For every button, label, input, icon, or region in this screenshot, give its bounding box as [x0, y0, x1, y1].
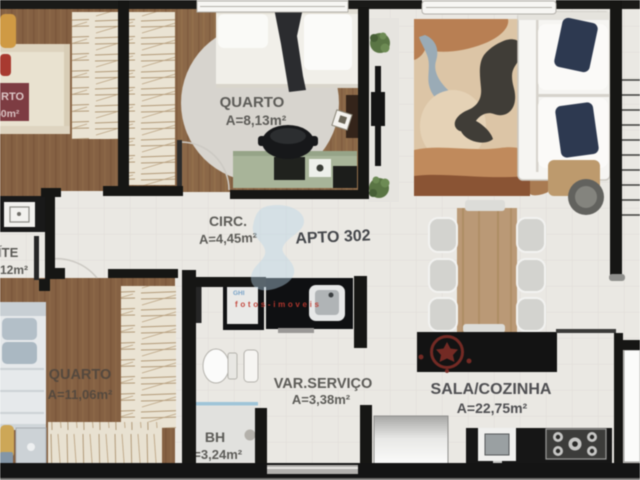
svg-text:SUÍTE: SUÍTE	[0, 245, 19, 260]
svg-text:A=4,45m²: A=4,45m²	[199, 230, 258, 247]
svg-text:CIRC.: CIRC.	[209, 213, 247, 229]
svg-text:,50m²: ,50m²	[0, 108, 20, 120]
svg-text:SALA/COZINHA: SALA/COZINHA	[431, 381, 552, 398]
svg-text:APTO 302: APTO 302	[295, 227, 371, 247]
svg-text:QUARTO: QUARTO	[49, 367, 112, 383]
svg-text:RTO: RTO	[1, 91, 24, 103]
svg-text:A=3,38m²: A=3,38m²	[292, 392, 351, 407]
svg-text:VAR.SERVIÇO: VAR.SERVIÇO	[274, 376, 373, 392]
svg-text:9,12m²: 9,12m²	[0, 263, 28, 277]
svg-text:A=22,75m²: A=22,75m²	[457, 400, 528, 416]
svg-text:GHI: GHI	[233, 290, 245, 297]
svg-text:fotos-imoveis: fotos-imoveis	[235, 300, 320, 309]
svg-text:A=11,06m²: A=11,06m²	[48, 387, 113, 402]
svg-text:QUARTO: QUARTO	[220, 94, 285, 111]
svg-text:A=8,13m²: A=8,13m²	[226, 113, 287, 128]
svg-text:BH: BH	[205, 429, 225, 445]
